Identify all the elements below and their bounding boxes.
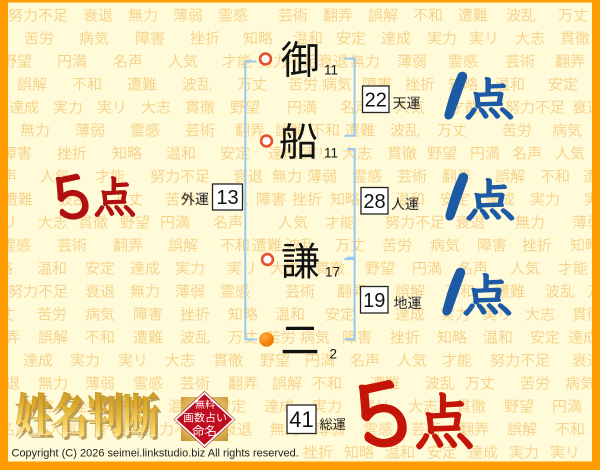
svg-text:22: 22	[365, 89, 387, 111]
svg-text:19: 19	[363, 290, 385, 312]
svg-text:17: 17	[325, 265, 340, 280]
svg-text:13: 13	[216, 187, 238, 209]
svg-text:41: 41	[289, 407, 313, 432]
svg-text:Copyright (C) 2026 seimei.link: Copyright (C) 2026 seimei.linkstudio.biz…	[12, 448, 299, 460]
svg-text:28: 28	[363, 191, 385, 213]
svg-text:2: 2	[330, 347, 338, 362]
svg-text:11: 11	[324, 63, 338, 78]
svg-text:11: 11	[324, 146, 338, 161]
